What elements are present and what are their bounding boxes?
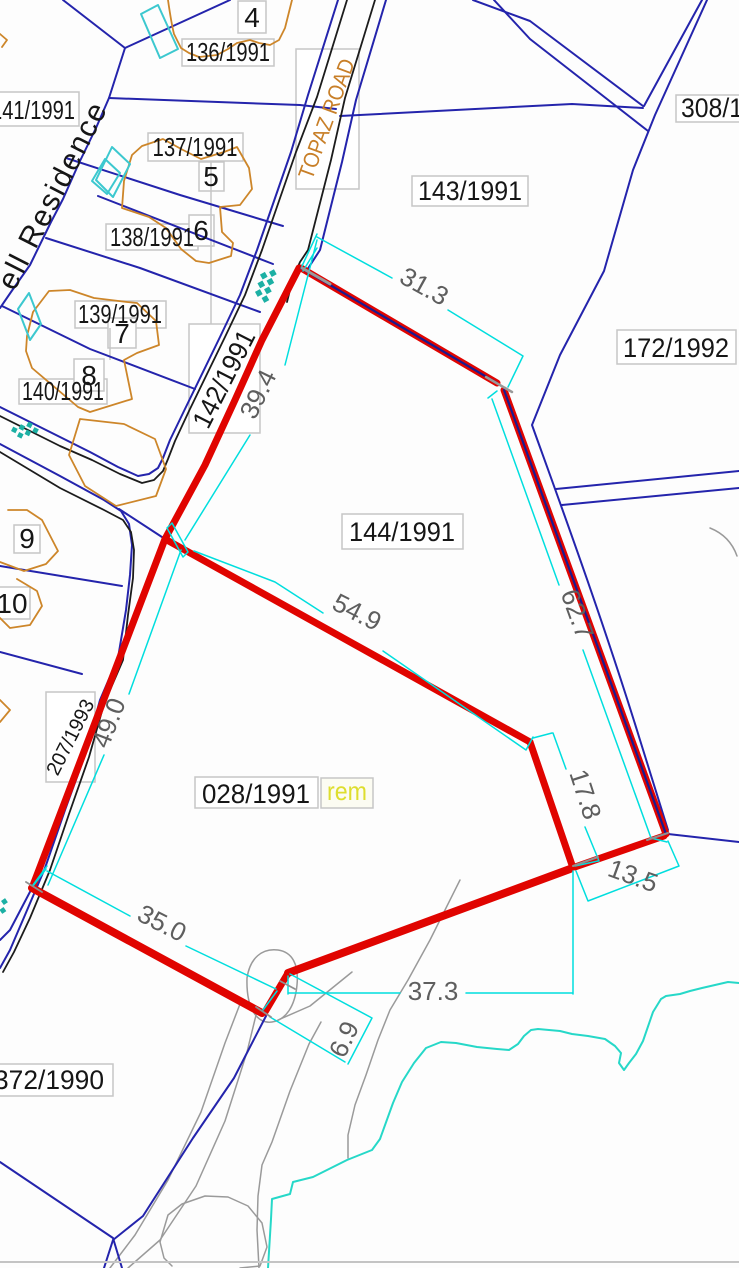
svg-text:7: 7 [114, 318, 130, 349]
svg-text:137/1991: 137/1991 [153, 132, 238, 162]
svg-text:8: 8 [81, 360, 97, 391]
svg-text:143/1991: 143/1991 [418, 176, 522, 206]
svg-text:028/1991: 028/1991 [202, 779, 310, 809]
svg-text:6: 6 [193, 215, 209, 246]
svg-text:308/1: 308/1 [681, 93, 739, 123]
svg-text:138/1991: 138/1991 [110, 222, 194, 252]
svg-text:136/1991: 136/1991 [186, 37, 270, 67]
svg-text:rem: rem [327, 776, 367, 806]
svg-text:144/1991: 144/1991 [349, 517, 455, 547]
svg-text:5: 5 [203, 161, 219, 192]
svg-text:172/1992: 172/1992 [623, 333, 729, 363]
svg-text:372/1990: 372/1990 [0, 1065, 104, 1095]
svg-text:9: 9 [19, 523, 35, 554]
svg-text:4: 4 [244, 2, 260, 33]
svg-text:10: 10 [0, 588, 28, 619]
svg-text:141/1991: 141/1991 [0, 95, 75, 125]
svg-text:37.3: 37.3 [408, 976, 459, 1006]
